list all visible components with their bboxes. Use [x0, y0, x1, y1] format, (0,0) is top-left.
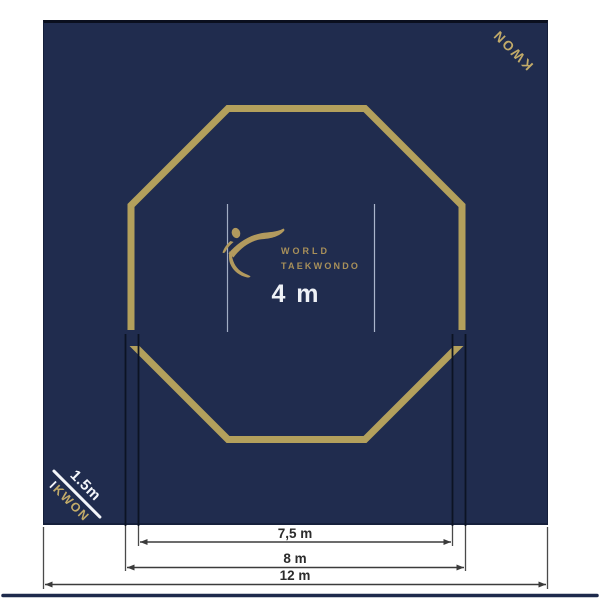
center-dimension-label: 4 m — [259, 282, 333, 307]
taekwondo-mat-diagram: WORLD TAEKWONDO 4 m KWON 1.5m IKWON 7,5 … — [0, 0, 600, 600]
dimension-label-12m: 12 m — [245, 569, 345, 583]
mat-surface — [43, 20, 548, 525]
dimension-label-7-5m: 7,5 m — [245, 527, 345, 541]
wordmark-world: WORLD — [281, 247, 330, 256]
wordmark-taekwondo: TAEKWONDO — [281, 262, 360, 271]
dimension-label-8m: 8 m — [245, 552, 345, 566]
